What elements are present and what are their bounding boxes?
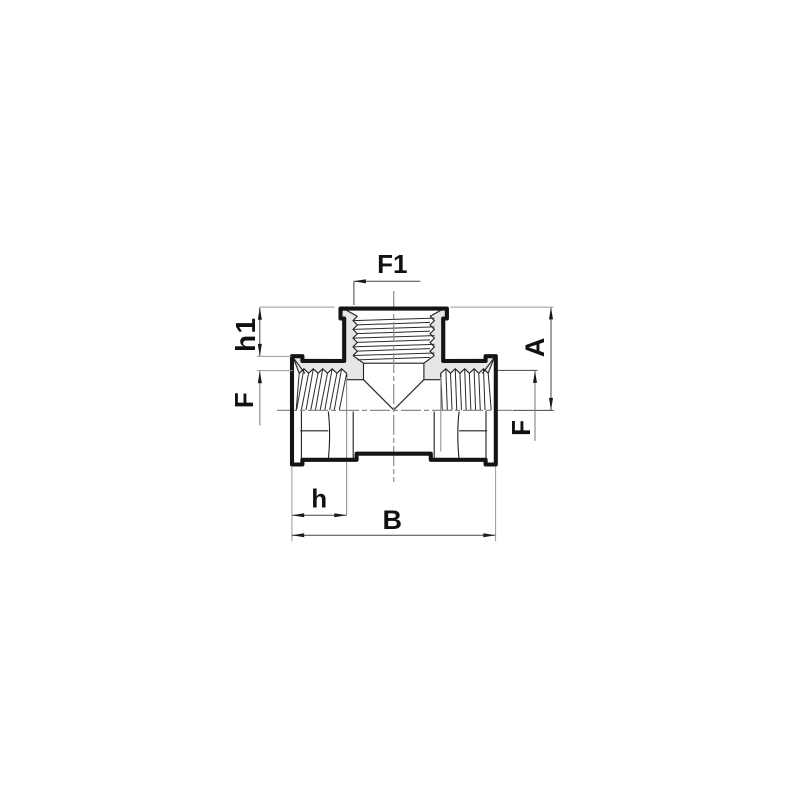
svg-text:A: A xyxy=(520,338,550,358)
svg-text:h: h xyxy=(311,484,327,514)
svg-text:F: F xyxy=(229,392,259,408)
svg-text:F: F xyxy=(506,420,536,436)
svg-text:B: B xyxy=(382,505,402,535)
svg-text:h1: h1 xyxy=(230,316,261,352)
svg-text:F1: F1 xyxy=(377,249,407,279)
